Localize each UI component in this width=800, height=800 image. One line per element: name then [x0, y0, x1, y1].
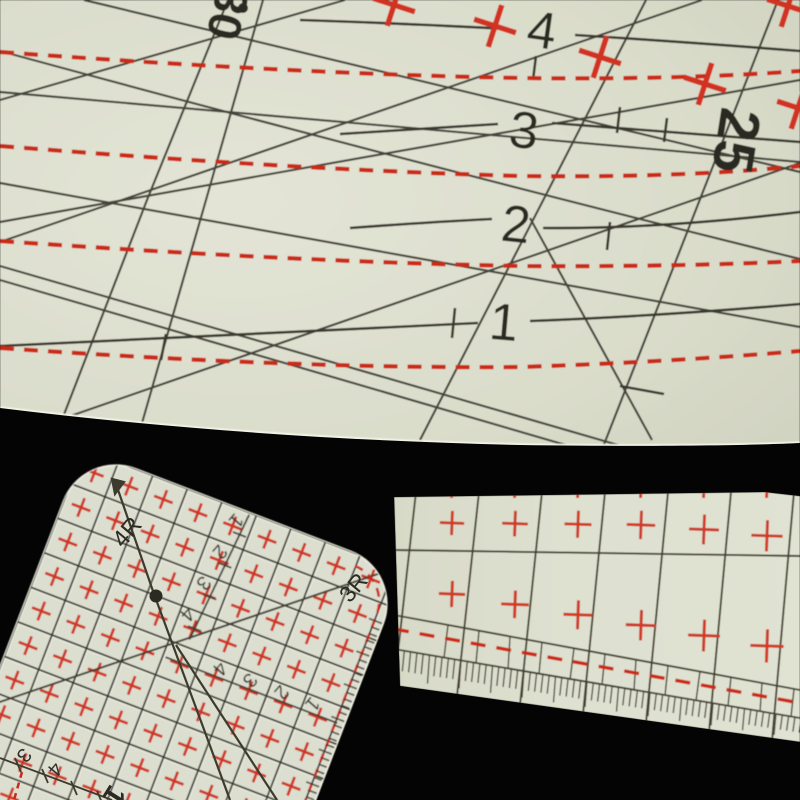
svg-text:1: 1	[487, 293, 521, 353]
svg-text:2: 2	[498, 195, 533, 256]
svg-text:25: 25	[699, 104, 773, 178]
